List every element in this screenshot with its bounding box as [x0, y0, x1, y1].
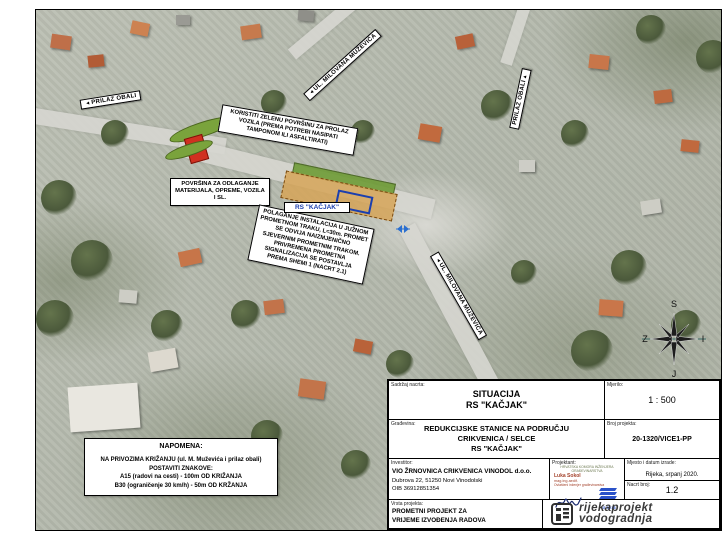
compass-east-label: I [702, 334, 705, 344]
field-label: Nacrt broj: [627, 482, 650, 488]
field-label: Projektant: [552, 460, 576, 466]
building-roof [263, 299, 285, 315]
drawing-sheet: ◄PRILAZ OBALI ◄UL. MILOVANA MUŽEVIĆA PRI… [0, 0, 728, 537]
title-block-row-parties: Investitor: VIO ŽRNOVNICA CRIKVENICA VIN… [389, 459, 719, 500]
street-name: UL. MILOVANA MUŽEVIĆA [313, 33, 378, 92]
napomena-line: A15 (radovi na cesti) - 100m OD KRIŽANJA [87, 473, 275, 482]
building-roof [653, 89, 672, 104]
tree [41, 180, 77, 216]
field-label: Sadržaj nacrta: [391, 382, 425, 388]
drawing-frame: ◄PRILAZ OBALI ◄UL. MILOVANA MUŽEVIĆA PRI… [35, 9, 722, 531]
building-roof [640, 199, 662, 216]
drawing-title: SITUACIJA [473, 389, 521, 400]
tree [101, 120, 129, 148]
cell-place-date: Mjesto i datum izrade: Rijeka, srpanj 20… [625, 459, 719, 499]
building-roof [680, 139, 699, 153]
field-label: Građevina: [391, 421, 415, 427]
field-label: Investitor: [391, 460, 413, 466]
tree [36, 300, 74, 338]
building-roof [519, 160, 535, 172]
cell-projektant: Projektant: HRVATSKA KOMORA INŽENJERA GR… [550, 459, 625, 499]
tree [71, 240, 113, 282]
building-roof [298, 9, 315, 21]
compass-south-label: J [672, 369, 677, 378]
tree [511, 260, 537, 286]
building-roof [598, 299, 623, 317]
building-roof [353, 338, 373, 354]
scale-value: 1 : 500 [648, 395, 676, 405]
building-roof [418, 123, 442, 143]
rijekaprojekt-logo-icon [551, 503, 573, 525]
hydrant-symbol-icon [396, 223, 410, 235]
napomena-line: B30 (ograničenje 30 km/h) - 50m OD KRŽAN… [87, 482, 275, 491]
investor-address: Dubrova 22, 51250 Novi Vinodolski [392, 477, 546, 485]
project-name: CRIKVENICA / SELCE [458, 434, 536, 444]
field-label: Mjesto i datum izrade: [627, 460, 676, 466]
title-block-row-project: Građevina: REDUKCIJSKE STANICE NA PODRUČ… [389, 420, 719, 459]
building-roof [178, 248, 203, 267]
note-green-area: KORISTITI ZELENU POVRŠINU ZA PROLAZ VOZI… [218, 104, 359, 155]
tree [231, 300, 261, 330]
tree [561, 120, 589, 148]
building-roof [147, 348, 178, 373]
building-roof [176, 15, 190, 25]
building-roof [455, 33, 475, 49]
tree [611, 250, 647, 286]
project-type: VRIJEME IZVOĐENJA RADOVA [392, 517, 539, 526]
cell-investitor: Investitor: VIO ŽRNOVNICA CRIKVENICA VIN… [389, 459, 550, 499]
tree [151, 310, 183, 342]
building-roof [68, 383, 141, 433]
cell-gradevina: Građevina: REDUKCIJSKE STANICE NA PODRUČ… [389, 420, 605, 458]
cell-mjerilo: Mjerilo: 1 : 500 [605, 381, 719, 419]
building-roof [118, 289, 137, 304]
street-banner-prilaz-obali-north: PRILAZ OBALI▲ [509, 68, 531, 130]
building-roof [588, 54, 609, 70]
sheet-number: 1.2 [666, 485, 679, 495]
project-number: 20-1320/VICE1-PP [632, 436, 692, 443]
tree [341, 450, 371, 480]
cell-sadrzaj: Sadržaj nacrta: SITUACIJA RS "KAČJAK" [389, 381, 605, 419]
tree [481, 90, 513, 122]
note-works: POLAGANJE INSTALACIJA U JUŽNOM PROMETNOM… [247, 204, 374, 284]
project-type: PROMETNI PROJEKT ZA [392, 508, 539, 517]
project-name: RS "KAČJAK" [471, 444, 522, 454]
building-roof [298, 378, 326, 399]
note-storage-area: POVRŠINA ZA ODLAGANJE MATERIJALA, OPREME… [170, 178, 270, 206]
road [500, 9, 547, 66]
title-block-row-content: Sadržaj nacrta: SITUACIJA RS "KAČJAK" Mj… [389, 381, 719, 420]
drawing-title: RS "KAČJAK" [466, 400, 527, 411]
tree [571, 330, 613, 372]
building-roof [130, 20, 150, 36]
title-block: Sadržaj nacrta: SITUACIJA RS "KAČJAK" Mj… [387, 379, 721, 530]
field-label: Mjerilo: [607, 382, 623, 388]
tree [696, 40, 722, 74]
investor-oib: OIB 36912851354 [392, 485, 546, 493]
cell-company-logo: rijekaprojekt vodogradnja [543, 500, 719, 528]
tree [636, 15, 666, 45]
chamber-logo-icon [598, 487, 620, 500]
napomena-box: NAPOMENA: NA PRIVOZIMA KRIŽANJU (ul. M. … [84, 438, 278, 496]
field-label: Vrsta projekta: [391, 501, 423, 507]
field-label: Broj projekta: [607, 421, 636, 427]
tree [386, 350, 414, 378]
building-roof [50, 34, 72, 51]
napomena-line: POSTAVITI ZNAKOVE: [87, 465, 275, 474]
place-date-value: Rijeka, srpanj 2020. [645, 472, 698, 478]
napomena-line: NA PRIVOZIMA KRIŽANJU (ul. M. Muževića i… [87, 456, 275, 465]
building-roof [87, 54, 104, 68]
company-name: vodogradnja [579, 514, 653, 526]
cell-broj-projekta: Broj projekta: 20-1320/VICE1-PP [605, 420, 719, 458]
compass-west-label: Z [642, 334, 648, 344]
cell-vrsta: Vrsta projekta: PROMETNI PROJEKT ZA VRIJ… [389, 500, 543, 528]
street-banner-prilaz-obali-west: ◄PRILAZ OBALI [80, 90, 142, 109]
title-block-row-company: Vrsta projekta: PROMETNI PROJEKT ZA VRIJ… [389, 500, 719, 528]
compass-north-label: S [671, 299, 677, 309]
building-roof [240, 24, 262, 41]
street-name: PRILAZ OBALI [512, 80, 527, 126]
investor-name: VIO ŽRNOVNICA CRIKVENICA VINODOL d.o.o. [392, 468, 546, 477]
napomena-title: NAPOMENA: [87, 443, 275, 450]
street-name: PRILAZ OBALI [91, 93, 137, 106]
compass-rose: S J Z I [642, 298, 706, 378]
station-label: RS "KAČJAK" [284, 202, 350, 213]
project-name: REDUKCIJSKE STANICE NA PODRUČJU [424, 424, 569, 434]
chamber-stamp-text: HRVATSKA KOMORA INŽENJERA GRAĐEVINARSTVA [552, 466, 622, 473]
